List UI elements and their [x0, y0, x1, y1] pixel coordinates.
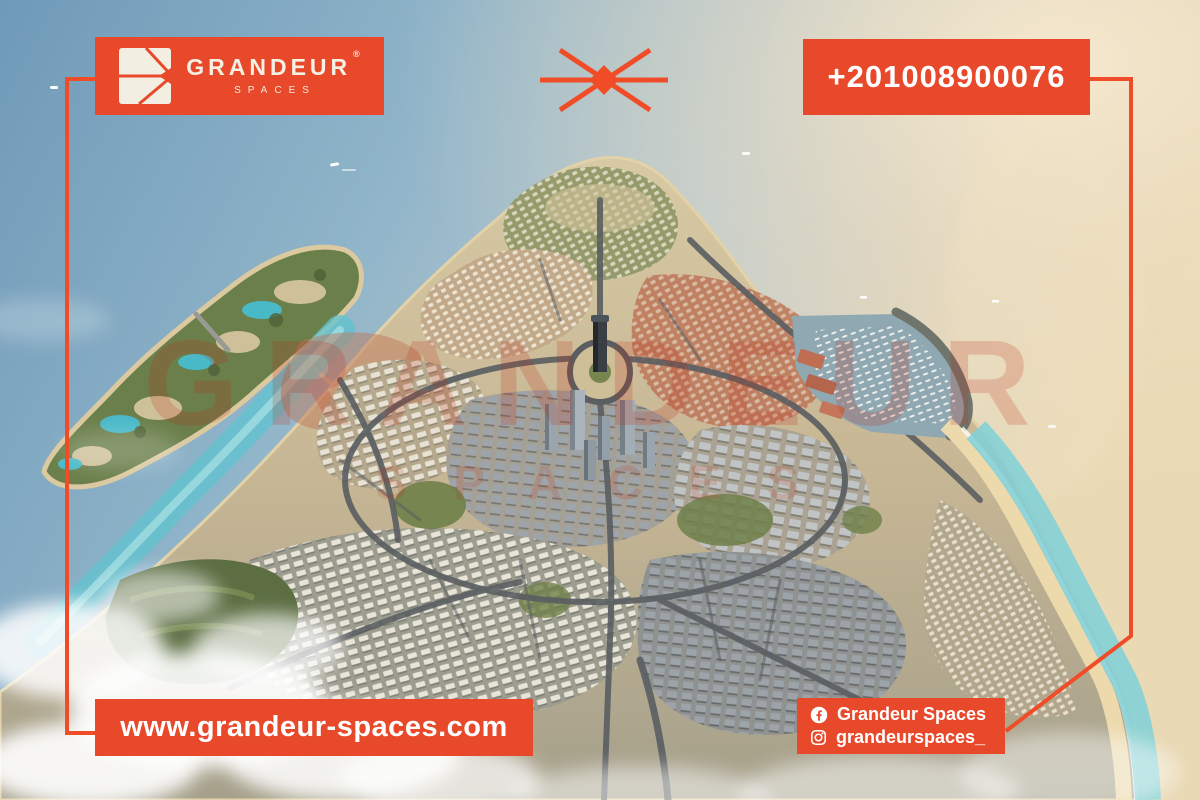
- x-star-divider-icon: [540, 48, 668, 112]
- poster: GRANDEUR SPACES GRANDEUR® SPACES: [0, 0, 1200, 800]
- brand-logo-box[interactable]: GRANDEUR® SPACES: [95, 37, 384, 115]
- grandeur-logo-icon: [119, 48, 171, 104]
- facebook-icon: [810, 706, 828, 724]
- brand-subtitle: SPACES: [230, 86, 316, 96]
- registered-mark: ®: [353, 49, 360, 59]
- brand-name: GRANDEUR®: [186, 56, 360, 79]
- website-box[interactable]: www.grandeur-spaces.com: [95, 699, 533, 756]
- brand-logo-text: GRANDEUR® SPACES: [186, 56, 360, 96]
- phone-number: +201008900076: [828, 59, 1066, 95]
- website-url: www.grandeur-spaces.com: [120, 711, 508, 744]
- aerial-city-render: [0, 0, 1200, 800]
- facebook-row[interactable]: Grandeur Spaces: [810, 705, 986, 725]
- social-box[interactable]: Grandeur Spaces grandeurspaces_: [797, 698, 1005, 754]
- instagram-handle: grandeurspaces_: [836, 728, 985, 748]
- instagram-row[interactable]: grandeurspaces_: [810, 728, 985, 748]
- instagram-icon: [810, 729, 827, 746]
- phone-box[interactable]: +201008900076: [803, 39, 1090, 115]
- facebook-handle: Grandeur Spaces: [837, 705, 986, 725]
